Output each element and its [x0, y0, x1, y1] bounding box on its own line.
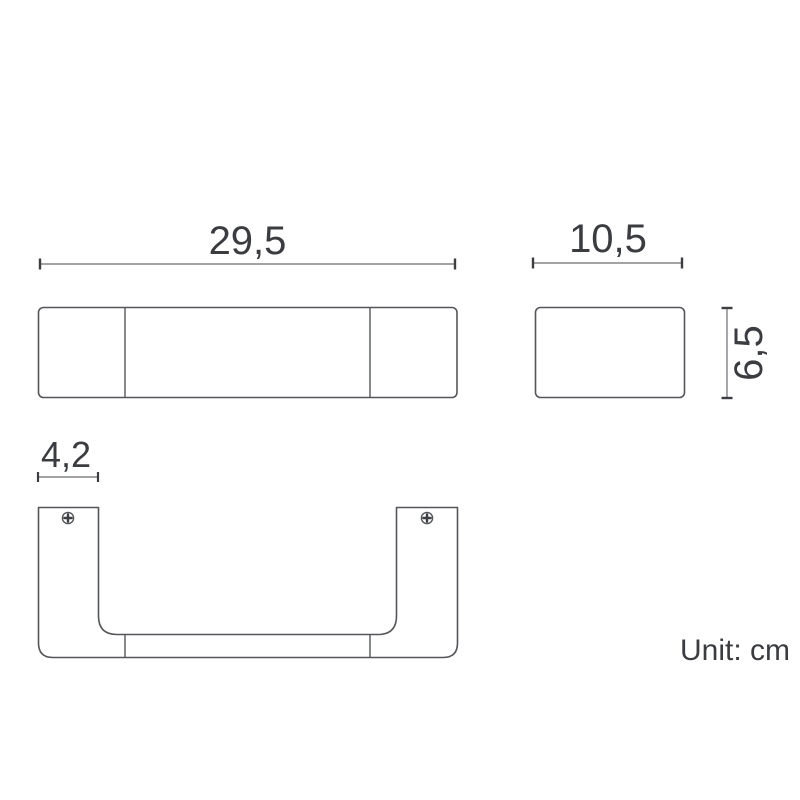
dim-label-front-width: 29,5 [40, 221, 455, 261]
technical-drawing-canvas [0, 0, 800, 800]
screw-icon-left [62, 512, 73, 523]
screw-icon-right [421, 512, 432, 523]
bottom-view [39, 508, 458, 658]
front-view-outline [39, 308, 458, 398]
bottom-view-outline [39, 508, 458, 658]
side-view [536, 308, 685, 398]
side-view-outline [536, 308, 685, 398]
front-view [39, 308, 458, 398]
diagram-page: 29,5 10,5 6,5 4,2 Unit: cm [0, 0, 800, 800]
dim-label-side-width: 10,5 [533, 219, 683, 259]
dim-label-side-height: 6,5 [729, 313, 769, 393]
unit-note: Unit: cm [640, 634, 790, 668]
dim-label-mount-width: 4,2 [26, 437, 106, 473]
